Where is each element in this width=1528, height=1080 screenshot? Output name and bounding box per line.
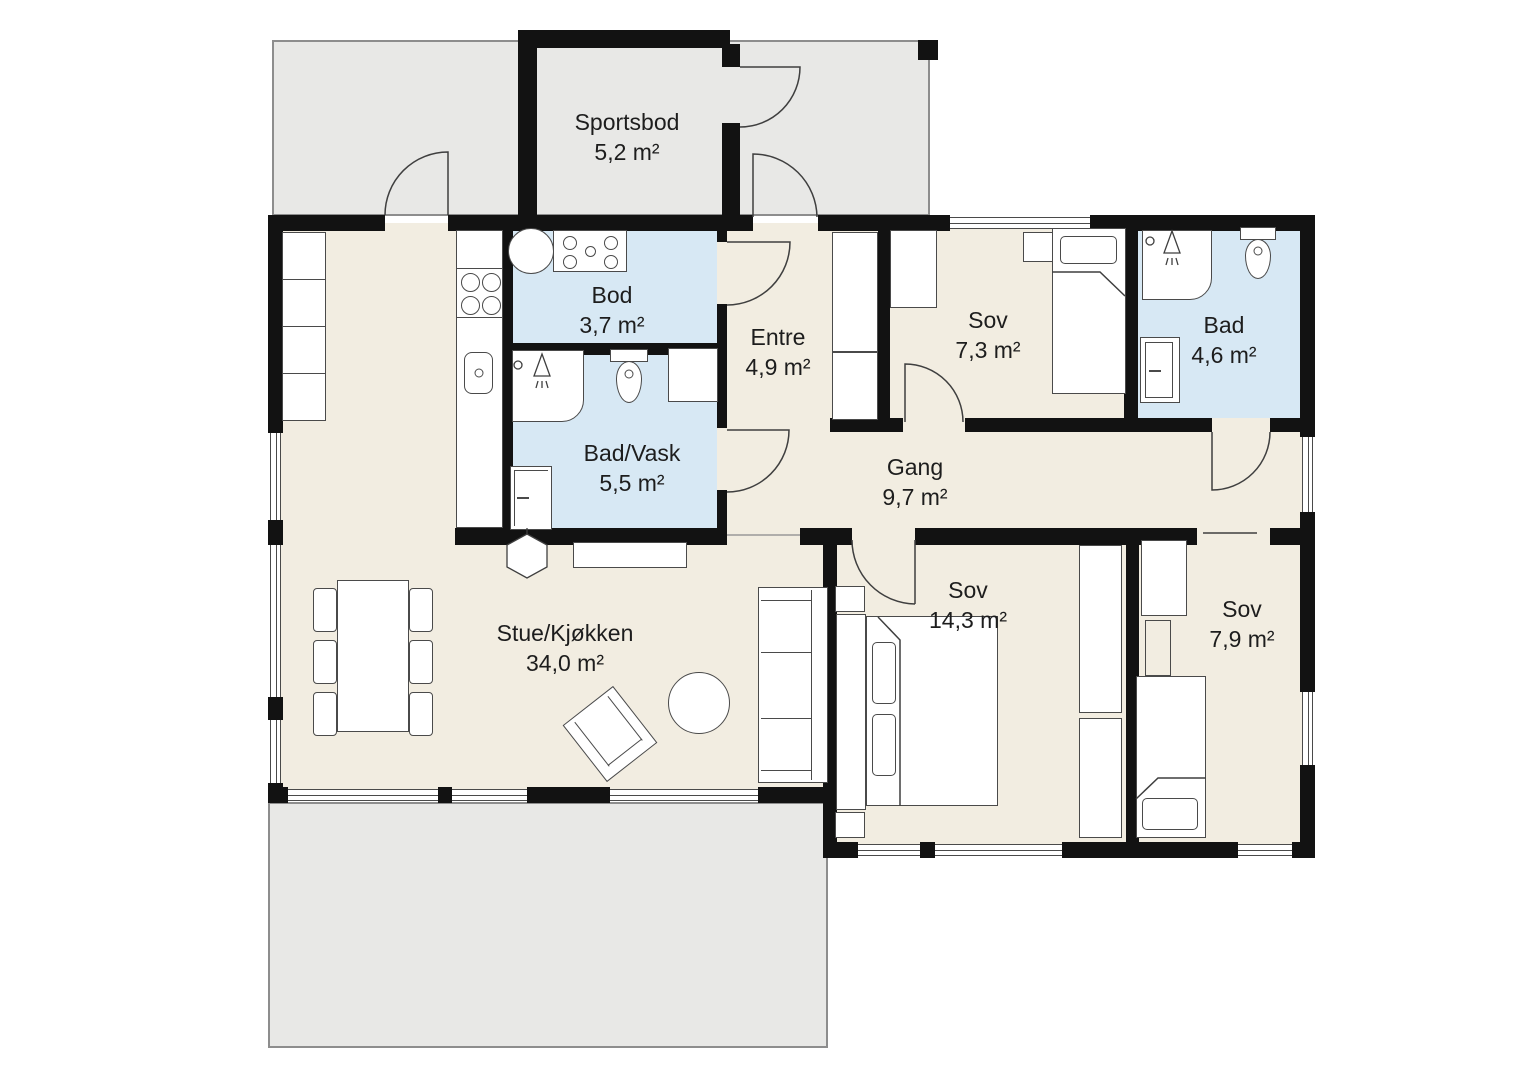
room-area: 5,2 m² xyxy=(575,137,680,167)
wall-sportsbod xyxy=(518,30,730,48)
dresser xyxy=(1145,620,1171,676)
room-label-entre: Entre 4,9 m² xyxy=(745,322,810,382)
window xyxy=(858,844,920,856)
pillow xyxy=(1060,236,1117,264)
room-area: 14,3 m² xyxy=(929,605,1007,635)
window xyxy=(288,789,438,801)
closet xyxy=(890,230,937,308)
room-area: 9,7 m² xyxy=(882,482,947,512)
room-name: Sov xyxy=(929,575,1007,605)
wall-sportsbod xyxy=(722,123,740,215)
pillow xyxy=(1142,798,1198,830)
pillow xyxy=(872,642,896,704)
room-area: 5,5 m² xyxy=(584,468,681,498)
room-name: Bad/Vask xyxy=(584,438,681,468)
room-label-stue-kjokken: Stue/Kjøkken 34,0 m² xyxy=(497,618,634,678)
window xyxy=(1302,437,1313,512)
dining-chair xyxy=(313,588,337,632)
room-label-gang: Gang 9,7 m² xyxy=(882,452,947,512)
wall xyxy=(1270,418,1300,432)
wall-sportsbod xyxy=(518,30,537,223)
terrace-bottom xyxy=(268,802,828,1048)
wall xyxy=(920,842,935,858)
washing-machine-icon xyxy=(510,466,552,530)
window xyxy=(270,720,281,783)
room-label-sov-1: Sov 7,3 m² xyxy=(955,305,1020,365)
room-label-sportsbod: Sportsbod 5,2 m² xyxy=(575,107,680,167)
wall xyxy=(878,223,890,425)
wall xyxy=(830,418,890,432)
wall xyxy=(965,418,1126,432)
wall xyxy=(268,520,283,545)
room-area: 34,0 m² xyxy=(497,648,634,678)
kitchen-sink-icon xyxy=(464,352,493,394)
wardrobe xyxy=(1079,545,1122,713)
wall xyxy=(1300,512,1315,692)
room-area: 7,9 m² xyxy=(1209,624,1274,654)
water-heater-icon xyxy=(508,228,554,274)
wall xyxy=(1300,765,1315,858)
laundry-bench-icon xyxy=(553,230,627,272)
room-name: Sportsbod xyxy=(575,107,680,137)
bathroom-cabinet xyxy=(668,348,718,402)
room-name: Gang xyxy=(882,452,947,482)
closet xyxy=(832,352,878,420)
dining-chair xyxy=(409,640,433,684)
nightstand xyxy=(835,586,865,612)
dining-chair xyxy=(313,692,337,736)
coffee-table xyxy=(668,672,730,734)
room-label-sov-2: Sov 14,3 m² xyxy=(929,575,1007,635)
room-name: Sov xyxy=(1209,594,1274,624)
dining-table xyxy=(337,580,409,732)
wall xyxy=(268,787,288,803)
porch-post xyxy=(918,40,938,60)
sofa xyxy=(758,587,828,783)
wall xyxy=(717,223,727,242)
wall xyxy=(758,787,830,803)
room-label-sov-3: Sov 7,9 m² xyxy=(1209,594,1274,654)
room-label-bod: Bod 3,7 m² xyxy=(579,280,644,340)
bed-headboard xyxy=(836,614,866,810)
kitchen-tall-cabinets xyxy=(282,232,326,421)
shower-icon xyxy=(512,350,584,422)
wall xyxy=(268,215,283,433)
wall xyxy=(268,215,385,231)
wall xyxy=(1062,842,1238,858)
room-area: 7,3 m² xyxy=(955,335,1020,365)
window xyxy=(270,433,281,520)
closet xyxy=(1141,540,1187,616)
dining-chair xyxy=(409,692,433,736)
wall xyxy=(438,787,452,803)
dining-chair xyxy=(313,640,337,684)
room-label-bad-vask: Bad/Vask 5,5 m² xyxy=(584,438,681,498)
wardrobe xyxy=(1079,718,1122,838)
sideboard xyxy=(573,542,687,568)
wall xyxy=(890,418,903,432)
wall xyxy=(717,490,727,528)
room-area: 4,9 m² xyxy=(745,352,810,382)
wall xyxy=(1270,528,1300,545)
room-name: Bad xyxy=(1191,310,1256,340)
room-name: Entre xyxy=(745,322,810,352)
closet xyxy=(832,232,878,352)
room-name: Sov xyxy=(955,305,1020,335)
shower-icon xyxy=(1142,230,1212,300)
window xyxy=(610,789,758,801)
nightstand xyxy=(835,812,865,838)
wall xyxy=(1300,215,1315,437)
stove-icon xyxy=(456,268,503,318)
window xyxy=(1238,844,1292,856)
window xyxy=(270,545,281,697)
vanity-cabinet xyxy=(1140,337,1180,403)
wall-sportsbod xyxy=(722,44,740,67)
wall xyxy=(527,787,610,803)
room-name: Stue/Kjøkken xyxy=(497,618,634,648)
wall xyxy=(717,304,727,428)
room-area: 3,7 m² xyxy=(579,310,644,340)
wall xyxy=(1138,418,1212,432)
wall xyxy=(1124,223,1138,432)
wall xyxy=(448,215,753,231)
pillow xyxy=(872,714,896,776)
floor-plan-canvas: Sportsbod 5,2 m² Bod 3,7 m² Bad/Vask 5,5… xyxy=(0,0,1528,1080)
room-area: 4,6 m² xyxy=(1191,340,1256,370)
window xyxy=(452,789,527,801)
room-label-bad: Bad 4,6 m² xyxy=(1191,310,1256,370)
room-name: Bod xyxy=(579,280,644,310)
dining-chair xyxy=(409,588,433,632)
window xyxy=(935,844,1062,856)
window xyxy=(1302,692,1313,765)
nightstand xyxy=(1023,232,1055,262)
wall xyxy=(268,697,283,720)
